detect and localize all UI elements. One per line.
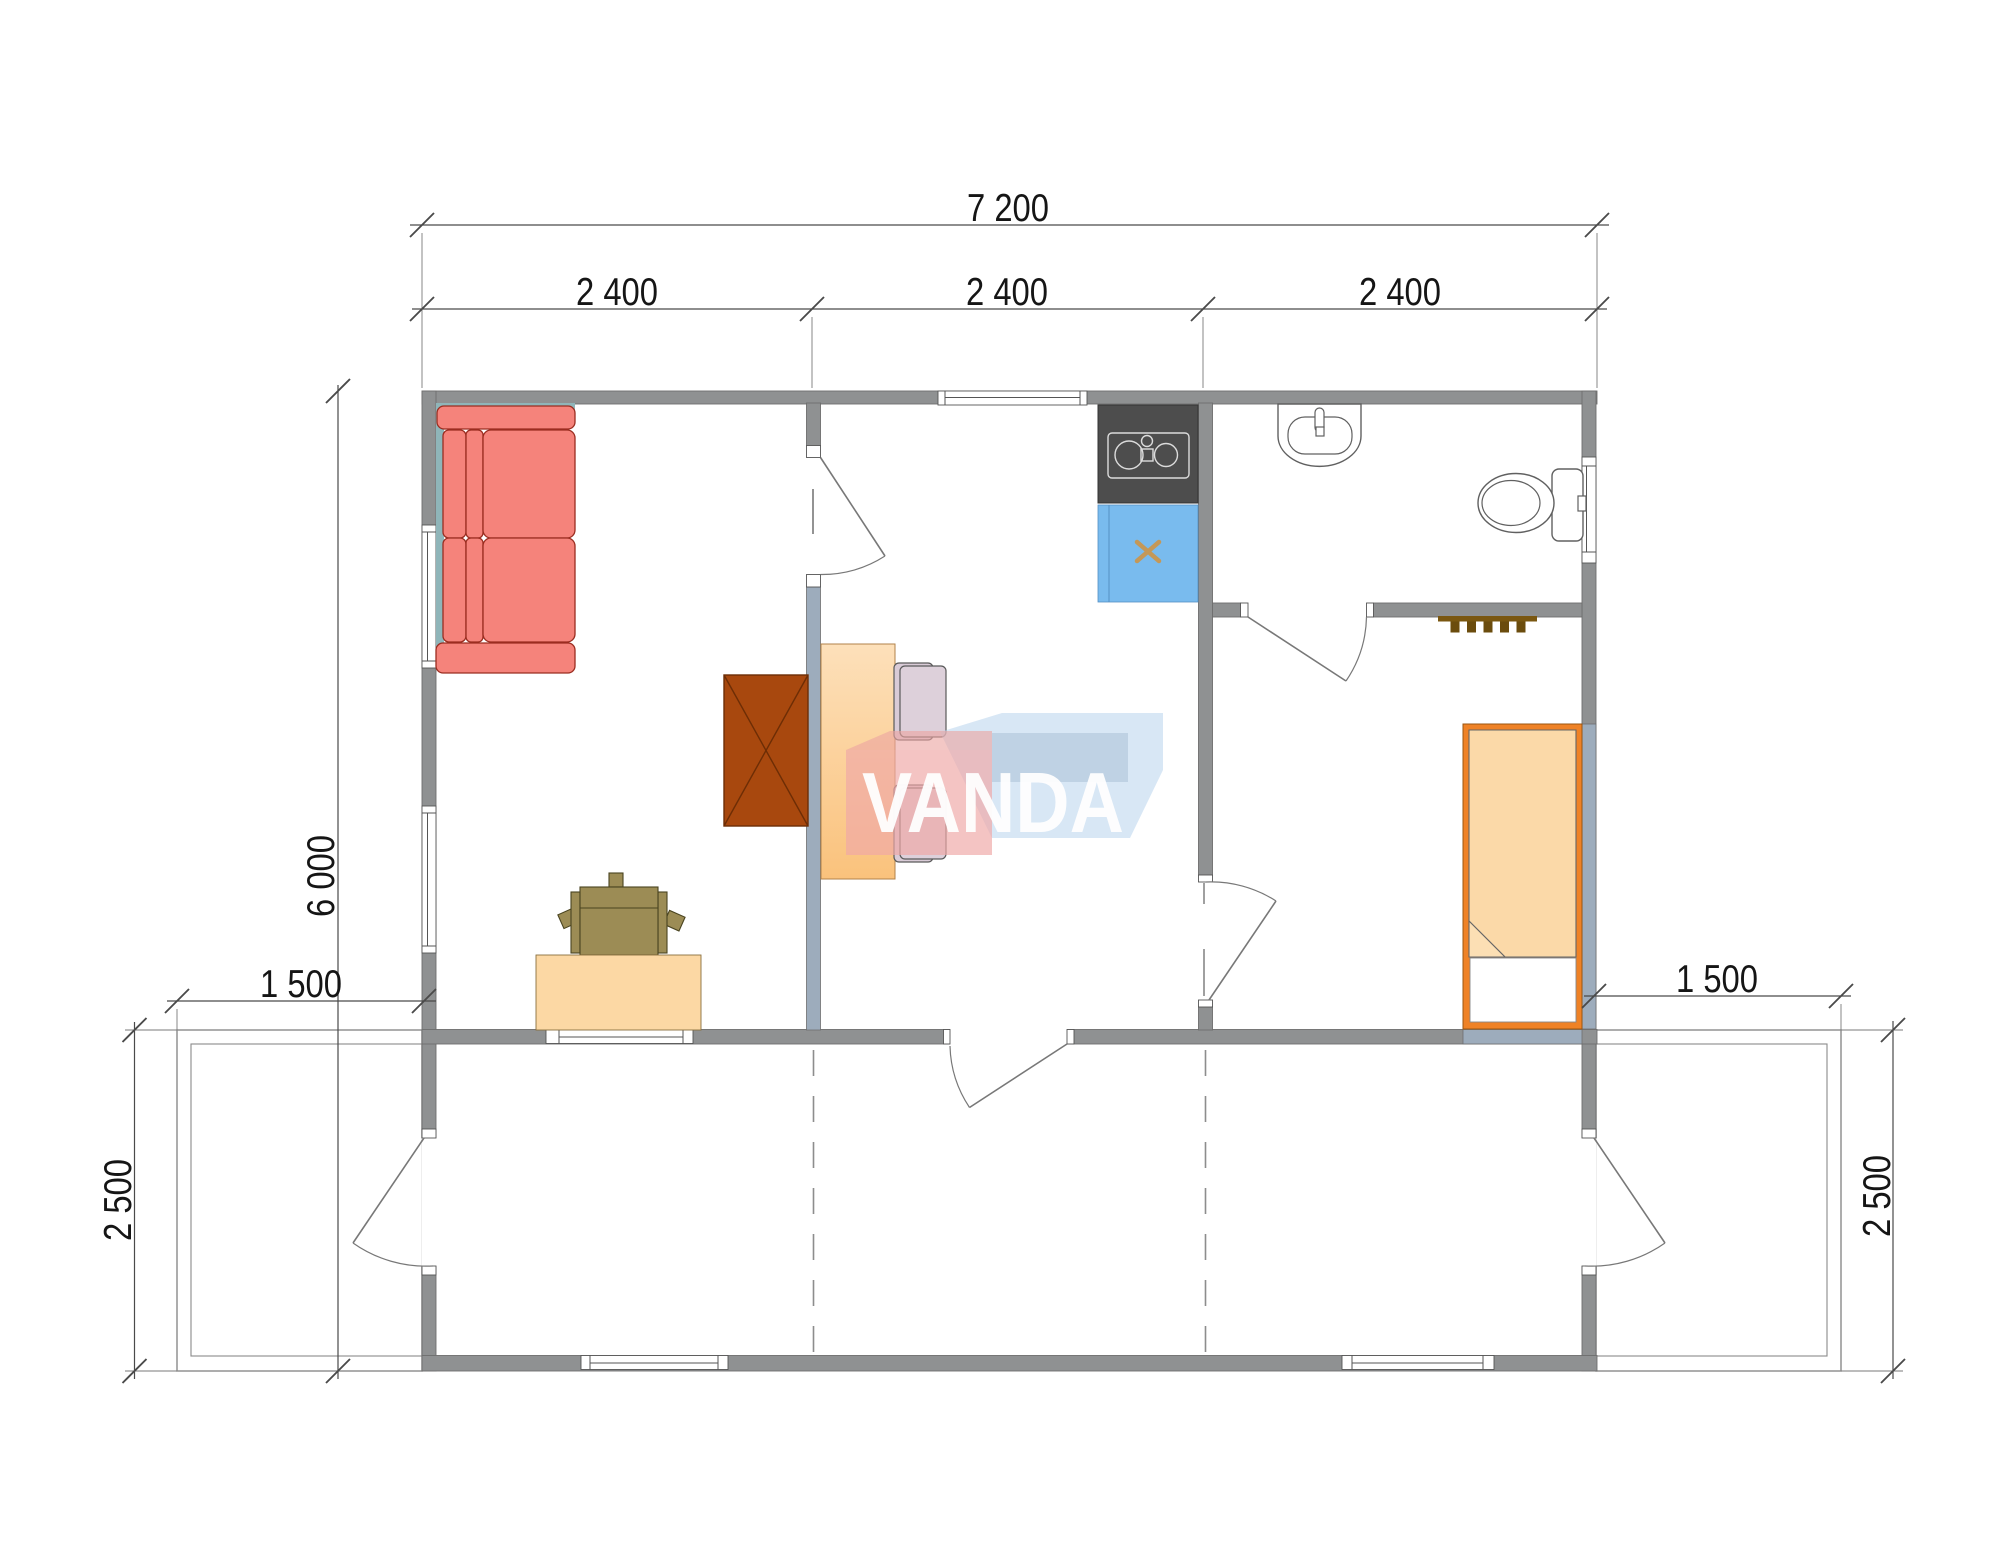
svg-text:7 200: 7 200 [967, 187, 1049, 230]
svg-text:2 500: 2 500 [97, 1159, 140, 1241]
svg-text:2 500: 2 500 [1856, 1155, 1899, 1237]
svg-text:2 400: 2 400 [576, 271, 658, 314]
svg-text:2 400: 2 400 [1359, 271, 1441, 314]
svg-text:VANDA: VANDA [862, 756, 1124, 851]
svg-text:2 400: 2 400 [966, 271, 1048, 314]
svg-text:1 500: 1 500 [260, 963, 342, 1006]
svg-text:6 000: 6 000 [300, 835, 343, 917]
svg-text:1 500: 1 500 [1676, 958, 1758, 1001]
